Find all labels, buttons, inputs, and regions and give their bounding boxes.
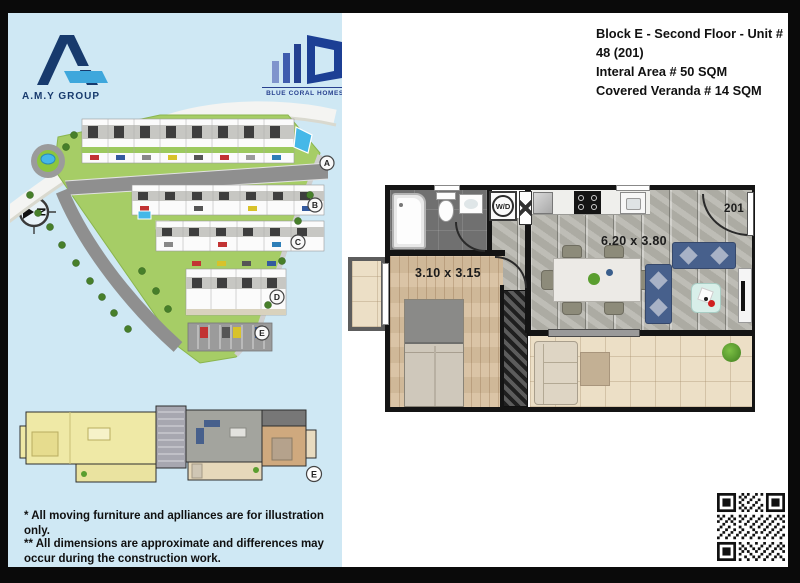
dining-chair — [604, 302, 624, 315]
veranda-plant — [722, 343, 741, 362]
wall-bath-bottom — [390, 250, 505, 256]
entry-unit-number: 201 — [724, 203, 744, 215]
tv-screen — [741, 281, 745, 311]
key-plan-block-label: E — [311, 470, 317, 480]
veranda-sliding-door — [548, 329, 640, 337]
dining-chair — [562, 302, 582, 315]
bedroom-window — [382, 263, 389, 325]
key-plan-stairs — [156, 406, 186, 468]
living-dimension-label: 6.20 x 3.80 — [601, 234, 667, 248]
building-row-1 — [82, 119, 294, 163]
veranda-sofa — [534, 341, 578, 405]
amy-group-logo-icon — [30, 33, 114, 87]
washer-dryer-unit: W/D — [489, 191, 517, 221]
sofa-horizontal — [672, 242, 736, 269]
wall-bedroom-right — [500, 285, 504, 407]
unit-header: Block E - Second Floor - Unit # 48 (201)… — [596, 24, 791, 100]
bedroom-balcony — [348, 257, 385, 331]
block-label-d: D — [274, 292, 280, 302]
flyer-page: A.M.Y GROUP BLUE CORAL HOMES N — [0, 0, 800, 583]
bedroom-dimension-label: 3.10 x 3.15 — [415, 266, 481, 280]
key-plan-adjacent-unit — [20, 412, 156, 482]
pool-1 — [138, 211, 151, 219]
bed — [404, 299, 464, 407]
disclaimer-1: * All moving furniture and aplliances ar… — [24, 509, 336, 538]
fridge — [533, 192, 553, 214]
blue-coral-homes-logo-icon — [266, 29, 346, 87]
toilet — [438, 200, 454, 222]
sofa-vertical — [645, 264, 672, 324]
dining-table — [553, 258, 641, 302]
shaft-closet — [519, 191, 532, 225]
washer-dryer-label: W/D — [492, 195, 514, 217]
tv-unit — [738, 268, 752, 323]
qr-code — [717, 493, 785, 561]
block-label-a: A — [324, 158, 330, 168]
left-panel: A.M.Y GROUP BLUE CORAL HOMES N — [8, 13, 342, 567]
header-line-3: Covered Veranda # 14 SQM — [596, 81, 791, 100]
coffee-table — [691, 283, 721, 313]
bathroom-sink — [459, 194, 483, 214]
header-line-1: Block E - Second Floor - Unit # 48 (201) — [596, 24, 791, 62]
block-label-c: C — [295, 237, 301, 247]
table-plant — [588, 273, 600, 285]
entry-door-leaf — [747, 192, 754, 236]
block-label-b: B — [312, 200, 318, 210]
block-label-e: E — [259, 328, 265, 338]
shower — [392, 193, 426, 249]
dining-chair — [562, 245, 582, 258]
disclaimer-2: ** All dimensions are approximate and di… — [24, 537, 336, 566]
kitchen-sink — [620, 192, 646, 214]
header-line-2: Interal Area # 50 SQM — [596, 62, 791, 81]
site-plan: A B C D E — [10, 95, 342, 393]
key-plan-this-unit — [186, 410, 316, 480]
kitchen-window — [616, 185, 650, 191]
key-plan: E — [18, 398, 324, 498]
toilet-cistern — [436, 192, 456, 200]
roundabout-pool — [31, 144, 65, 178]
building-row-2 — [132, 185, 324, 215]
cooktop — [574, 191, 601, 214]
veranda-rug — [580, 352, 610, 386]
bathroom-window — [434, 185, 460, 191]
